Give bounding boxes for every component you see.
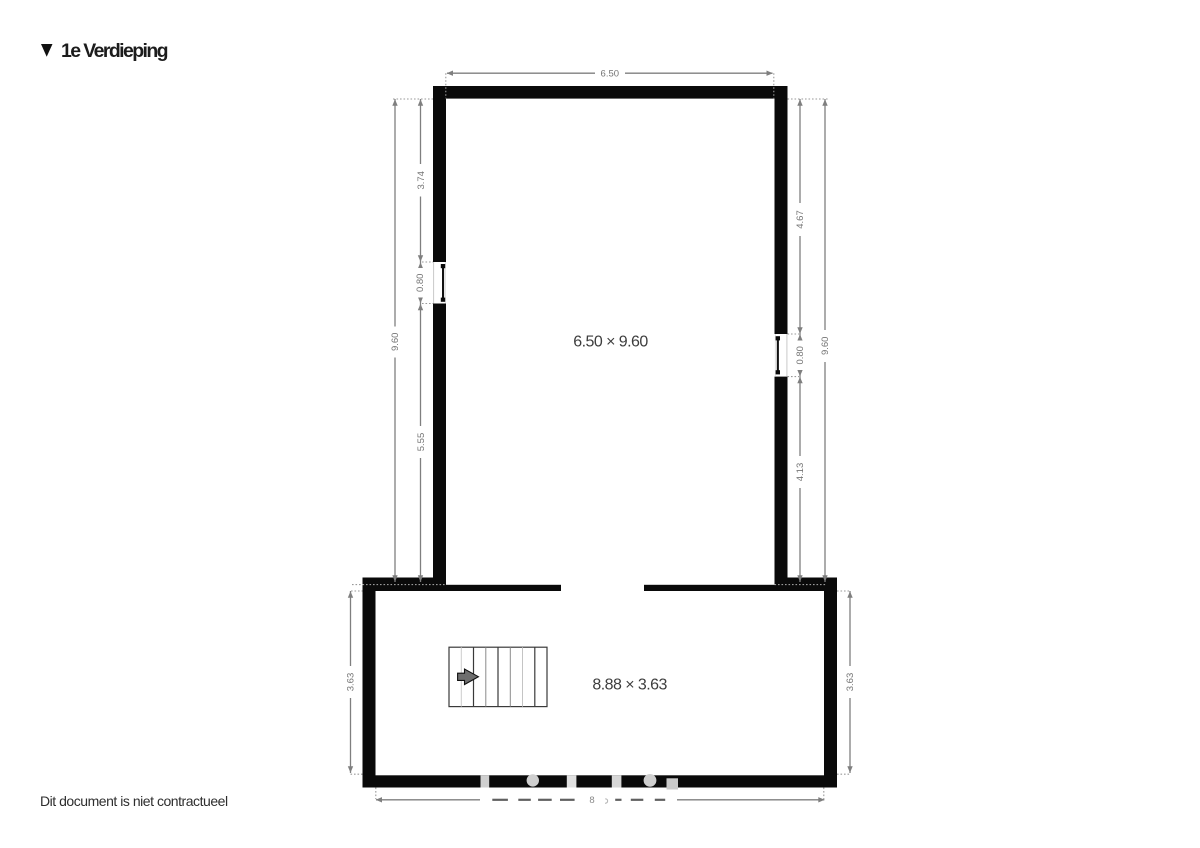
svg-text:9.60: 9.60 <box>820 337 831 356</box>
svg-text:5.55: 5.55 <box>416 433 427 452</box>
svg-text:8.88 × 3.63: 8.88 × 3.63 <box>592 677 667 694</box>
svg-text:6.50 × 9.60: 6.50 × 9.60 <box>573 334 648 351</box>
svg-text:0.80: 0.80 <box>415 274 426 293</box>
svg-text:0.80: 0.80 <box>795 346 806 365</box>
svg-text:1e Verdieping: 1e Verdieping <box>61 40 168 62</box>
svg-text:3.63: 3.63 <box>845 673 856 692</box>
svg-text:4.67: 4.67 <box>795 210 806 229</box>
svg-text:Dit document is niet contractu: Dit document is niet contractueel <box>40 793 228 809</box>
svg-text:3.74: 3.74 <box>416 171 427 190</box>
svg-text:6.50: 6.50 <box>601 69 620 80</box>
svg-text:8: 8 <box>589 795 594 806</box>
svg-text:9.60: 9.60 <box>390 333 401 352</box>
svg-text:3.63: 3.63 <box>346 673 357 692</box>
svg-text:4.13: 4.13 <box>795 463 806 482</box>
